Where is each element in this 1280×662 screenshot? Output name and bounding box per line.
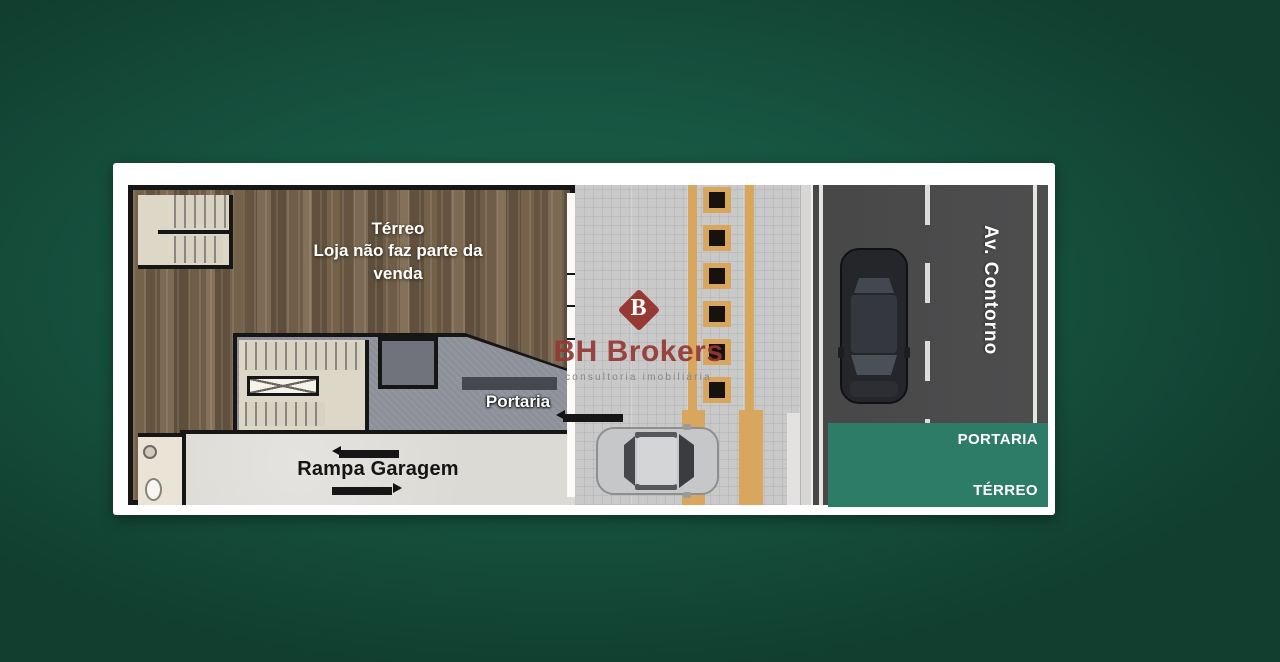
floor-title-text: Térreo <box>372 219 425 238</box>
sink-icon <box>143 445 157 459</box>
driveway-stripe <box>739 410 763 505</box>
floor-plan-sheet: Térreo Loja não faz parte da venda Porta… <box>113 163 1055 515</box>
car-icon-silver-top-view <box>595 424 720 498</box>
brand-name: BH Brokers <box>551 335 726 369</box>
tactile-square <box>703 263 731 289</box>
stair-divider-wall <box>158 230 229 234</box>
floor-title: Térreo Loja não faz parte da venda <box>283 218 513 285</box>
core-staircase <box>239 340 369 430</box>
location-info-box: PORTARIA TÉRREO <box>828 423 1048 507</box>
arrow-left-icon <box>332 446 392 456</box>
road-edge-line <box>819 185 823 505</box>
brand-logo: B BH Brokers consultoria imobiliária <box>551 289 726 383</box>
floor-note-text: Loja não faz parte da venda <box>292 240 504 285</box>
brand-tagline: consultoria imobiliária <box>551 372 726 383</box>
brand-diamond-icon: B <box>618 289 660 331</box>
core-stair-flight-lower <box>245 402 325 426</box>
info-box-terreo-label: TÉRREO <box>973 482 1038 499</box>
street-name-label: Av. Contorno <box>975 225 1001 435</box>
stair-flight-lower <box>174 236 223 263</box>
tactile-square <box>703 187 731 213</box>
reception-label: Portaria <box>458 392 578 412</box>
toilet-icon <box>145 478 162 501</box>
render-canvas: Térreo Loja não faz parte da venda Porta… <box>0 0 1280 662</box>
curb <box>800 185 813 505</box>
bathroom <box>138 433 186 505</box>
curb-ramp <box>787 413 800 505</box>
reception-desk <box>462 377 557 390</box>
staircase-top-left <box>138 195 233 269</box>
entrance-arrow-left-icon <box>556 410 620 420</box>
tactile-paving-strip <box>745 185 754 410</box>
ramp-label: Rampa Garagem <box>297 458 459 481</box>
brand-logo-letter: B <box>618 295 660 322</box>
car-icon-dark-top-view <box>838 247 910 405</box>
elevator-icon <box>247 376 319 396</box>
garage-ramp-area: Rampa Garagem <box>180 430 576 505</box>
window-mark <box>567 273 575 275</box>
building-plan: Térreo Loja não faz parte da venda Porta… <box>128 185 575 505</box>
arrow-right-icon <box>332 483 402 493</box>
elevator-shaft <box>378 337 438 389</box>
stair-flight-upper <box>174 195 228 228</box>
tactile-square <box>703 225 731 251</box>
info-box-portaria-label: PORTARIA <box>958 431 1038 448</box>
core-stair-flight-upper <box>245 342 361 370</box>
